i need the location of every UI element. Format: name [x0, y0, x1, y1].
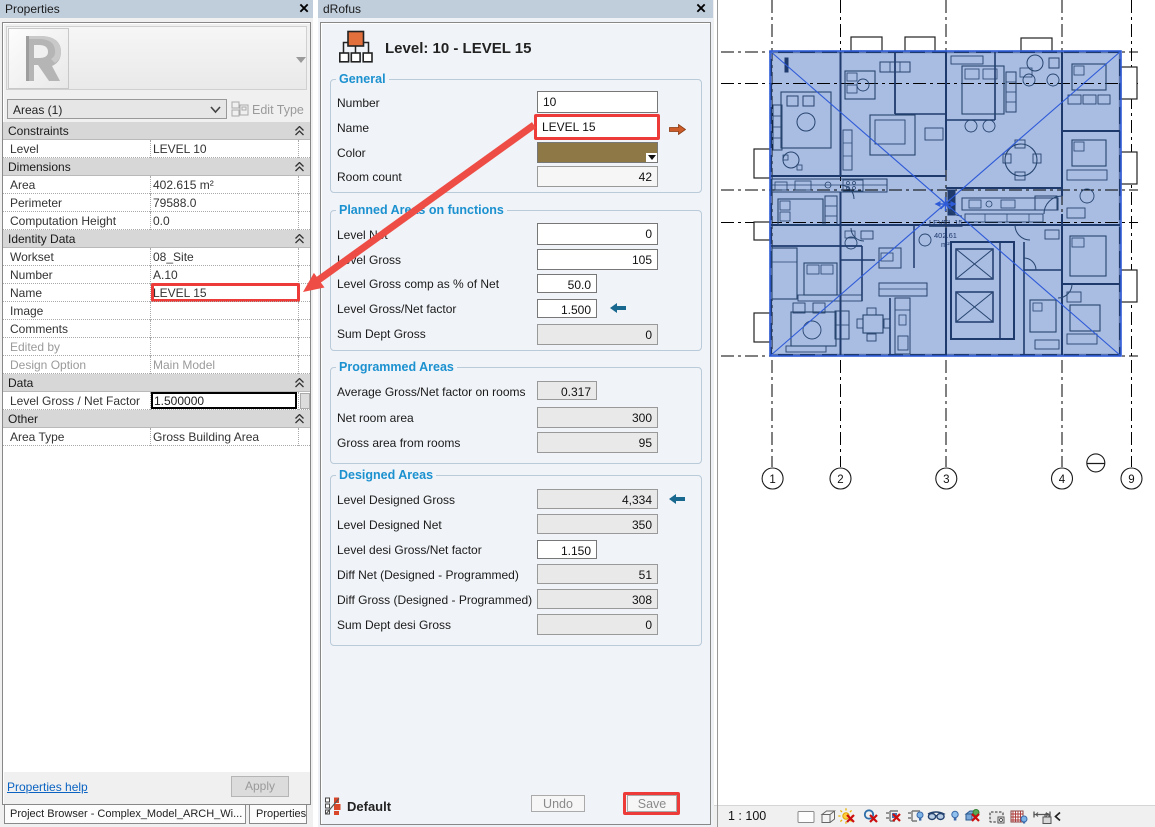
svg-text:9: 9 [1128, 474, 1134, 486]
svg-text:1: 1 [769, 474, 775, 486]
svg-text:m²: m² [941, 240, 950, 249]
svg-text:LEVEL 15: LEVEL 15 [929, 218, 963, 227]
svg-text:3: 3 [943, 474, 949, 486]
svg-text:4: 4 [1059, 474, 1066, 486]
svg-text:2: 2 [837, 474, 843, 486]
svg-text:402.61: 402.61 [934, 231, 957, 240]
